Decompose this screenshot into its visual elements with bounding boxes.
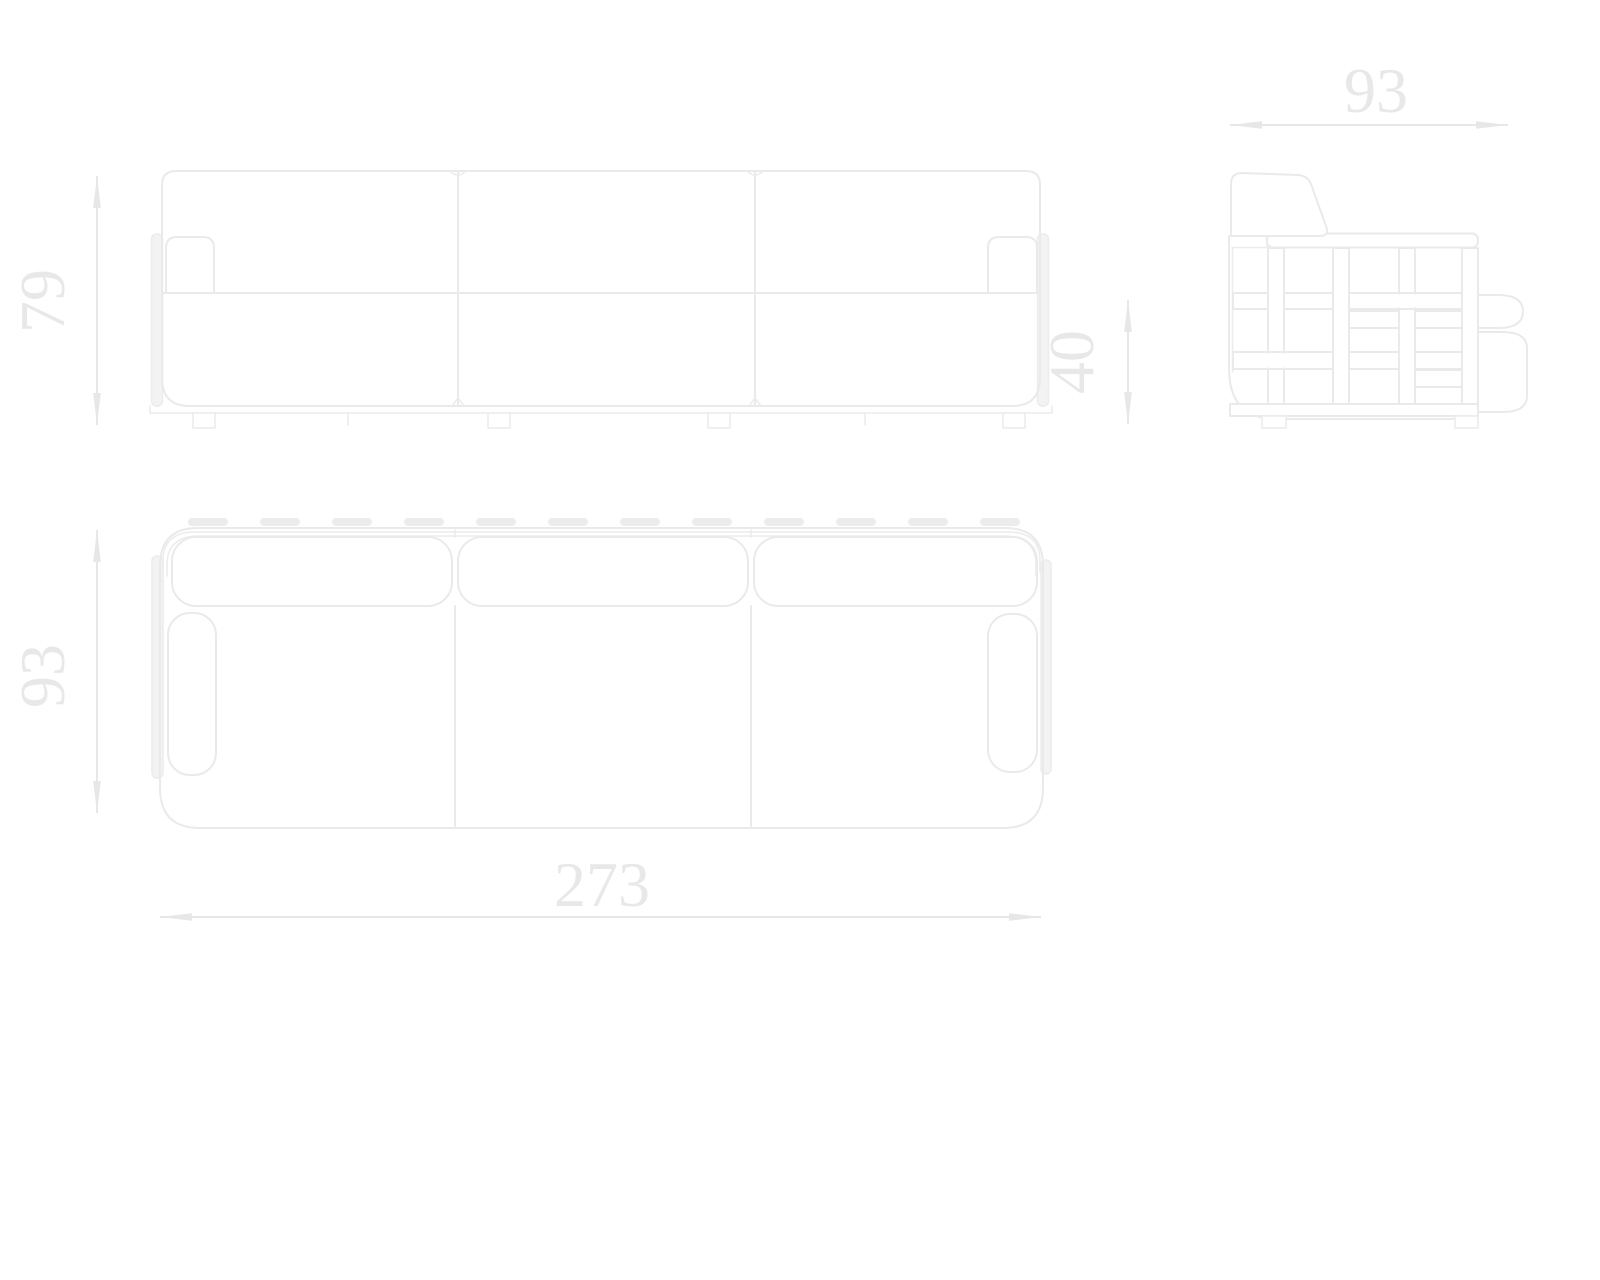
technical-drawing-page: 79 93 273 93 40 [0,0,1600,1280]
stitch-mark [404,518,444,526]
front-foot [488,413,510,428]
stitch-mark [620,518,660,526]
plan-back-rail-line [167,536,1036,576]
front-right-armrest-panel [988,237,1037,293]
side-web-strap-vertical [1399,248,1415,404]
plan-left-armrest-pad [168,613,216,775]
dimension-overall-width: 273 [160,849,1041,920]
stitch-mark [908,518,948,526]
stitch-mark [692,518,732,526]
stitch-mark [548,518,588,526]
front-left-arm-strap [152,234,163,406]
side-web-strap-vertical [1268,248,1284,404]
dimension-label-side-depth: 93 [1344,55,1408,126]
dimension-seat-height: 40 [1036,300,1128,424]
side-front-post [1462,248,1478,404]
front-foot [1003,413,1025,428]
plan-back-cushion [458,537,748,606]
sofa-dimension-drawing: 79 93 273 93 40 [0,0,1600,1280]
stitch-mark [260,518,300,526]
front-body-outline [162,171,1040,406]
plan-back-stitch-marks [188,518,1020,526]
plan-back-cushion [172,537,452,606]
side-bottom-rail [1230,404,1478,416]
side-back-cushion [1231,173,1327,236]
dimension-label-plan-depth: 93 [7,644,78,708]
side-foot [1455,416,1478,428]
dimension-front-height: 79 [7,176,97,425]
stitch-mark [476,518,516,526]
stitch-mark [836,518,876,526]
plan-body-outline [160,528,1043,828]
side-base-front [1478,332,1527,412]
front-foot [193,413,215,428]
side-foot [1262,416,1286,428]
dimension-plan-depth: 93 [7,530,97,813]
side-web-strap-vertical [1333,248,1349,404]
dimension-label-front-height: 79 [7,269,78,333]
side-seat-cushion [1478,295,1523,328]
front-left-armrest-panel [166,237,214,293]
side-weave-cross [1396,295,1418,308]
stitch-mark [188,518,228,526]
dimension-side-depth: 93 [1230,55,1508,126]
top-plan-view [152,518,1051,828]
stitch-mark [764,518,804,526]
plan-back-cushion [754,537,1037,606]
side-weave-cross [1265,354,1287,368]
dimension-label-seat-height: 40 [1036,330,1107,394]
front-base-rail [150,406,1052,413]
stitch-mark [332,518,372,526]
plan-right-armrest-pad [988,614,1037,772]
stitch-mark [980,518,1020,526]
front-elevation-view [150,171,1052,428]
plan-left-arm-strap [152,556,163,778]
side-elevation-view [1229,173,1527,428]
dimension-label-overall-width: 273 [554,849,650,920]
front-foot [708,413,730,428]
